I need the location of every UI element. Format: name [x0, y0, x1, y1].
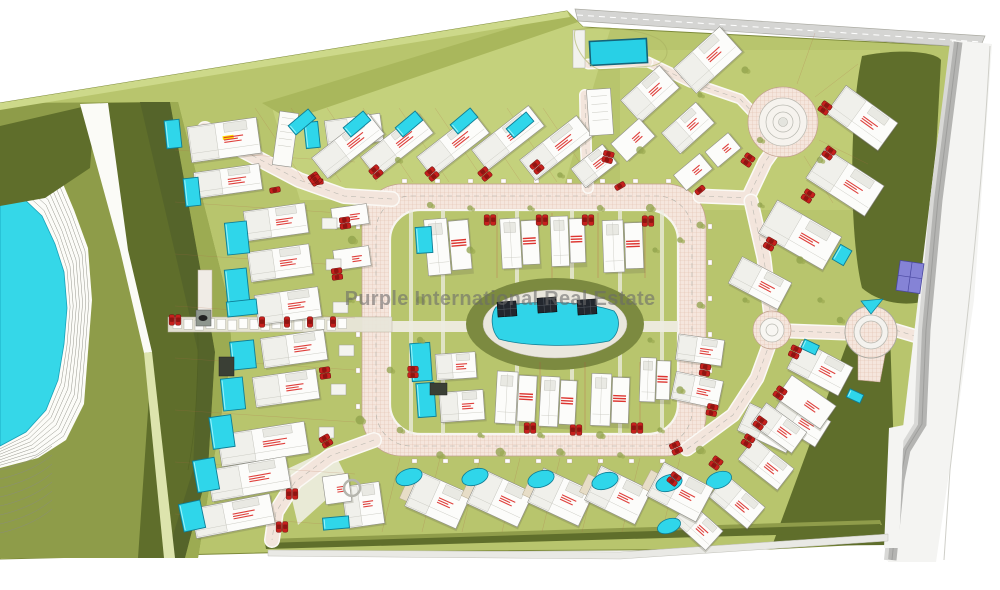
- svg-text:Purple International Real Esta: Purple International Real Estate: [345, 288, 656, 310]
